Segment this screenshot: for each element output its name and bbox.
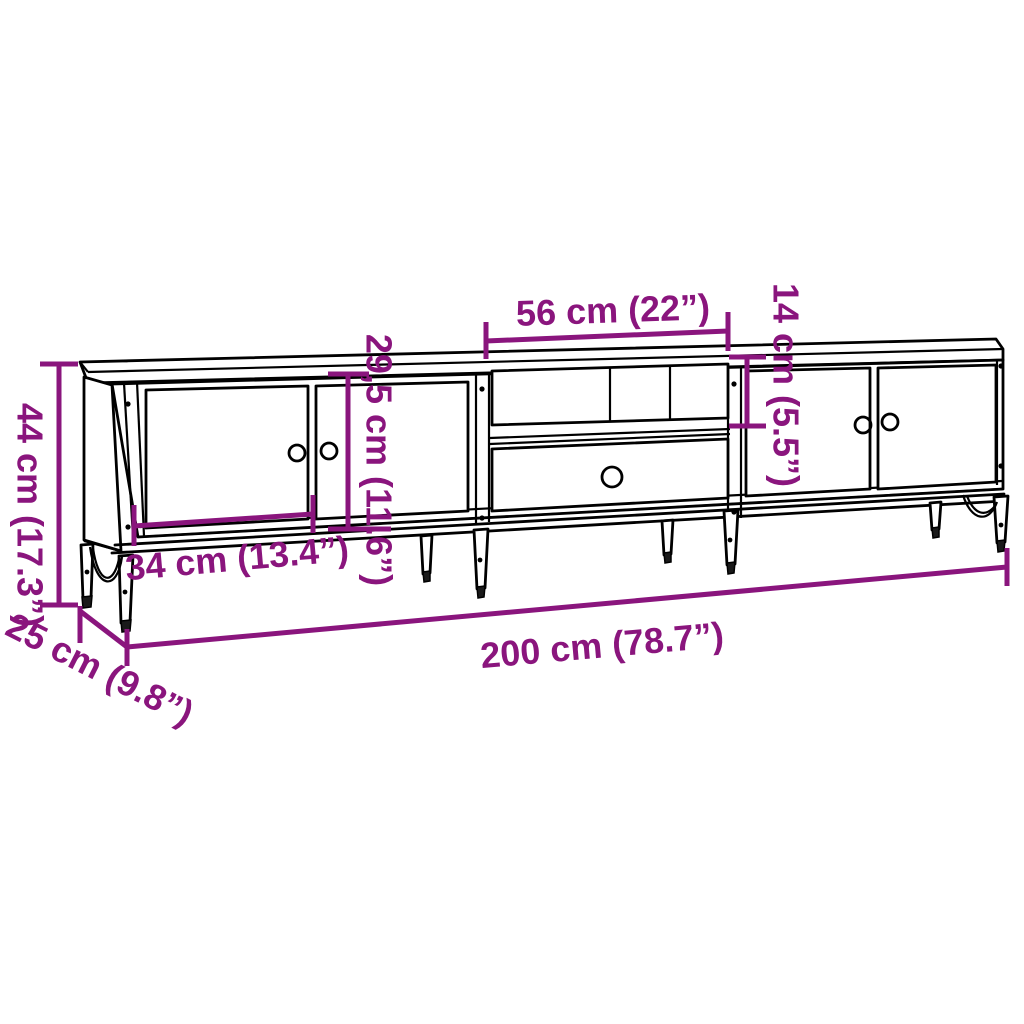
furniture-dimension-diagram: 44 cm (17.3”) 25 cm (9.8”) 200 cm (78.7”…	[0, 0, 1024, 1024]
inner-height-label: 29,5 cm (11.6”)	[359, 334, 400, 586]
right-door-1	[746, 368, 870, 496]
shelf-opening-height-label: 14 cm (5.5”)	[766, 283, 807, 487]
overall-height-label: 44 cm (17.3”)	[10, 403, 51, 627]
left-cabinet	[146, 382, 468, 528]
shelf-width-label: 56 cm (22”)	[515, 286, 710, 334]
drawer	[492, 439, 728, 511]
left-door-1	[146, 386, 308, 528]
